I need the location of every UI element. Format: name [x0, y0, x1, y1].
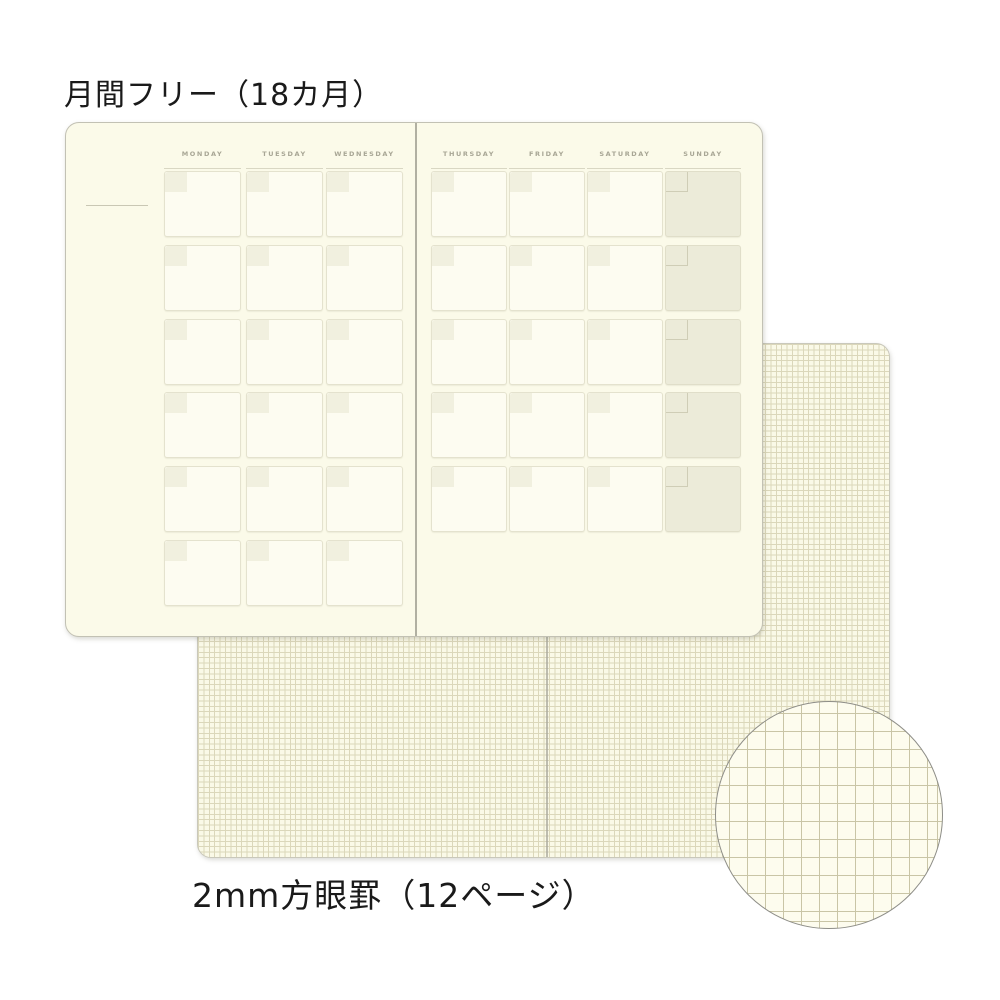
calendar-cell: [587, 466, 663, 532]
day-header: MONDAY: [164, 149, 241, 159]
date-corner-square: [327, 467, 349, 487]
date-corner-square: [510, 172, 532, 192]
date-corner-square: [247, 393, 269, 413]
date-corner-square: [165, 393, 187, 413]
calendar-cell: [164, 540, 241, 606]
calendar-cell: [246, 466, 323, 532]
calendar-cell: [326, 245, 403, 311]
date-corner-square: [588, 246, 610, 266]
date-corner-square: [432, 393, 454, 413]
calendar-cell: [326, 319, 403, 385]
day-header: SATURDAY: [587, 149, 663, 159]
calendar-cell: [326, 466, 403, 532]
date-corner-square: [432, 467, 454, 487]
date-corner-square: [666, 320, 688, 340]
date-corner-square: [588, 467, 610, 487]
calendar-cell: [665, 245, 741, 311]
calendar-cell: [665, 171, 741, 237]
day-header-rule: [587, 168, 663, 169]
date-corner-square: [327, 246, 349, 266]
monthly-calendar-spread: MONDAYTUESDAYWEDNESDAY THURSDAYFRIDAYSAT…: [65, 122, 763, 637]
date-corner-square: [247, 541, 269, 561]
date-corner-square: [327, 541, 349, 561]
day-header-rule: [326, 168, 403, 169]
top-title: 月間フリー（18カ月）: [64, 70, 383, 114]
calendar-cell: [164, 171, 241, 237]
calendar-cell: [431, 245, 507, 311]
calendar-cell: [246, 171, 323, 237]
calendar-cell: [431, 392, 507, 458]
month-title-line: [86, 205, 148, 206]
calendar-cell: [509, 171, 585, 237]
calendar-cell: [509, 466, 585, 532]
date-corner-square: [327, 393, 349, 413]
date-corner-square: [432, 320, 454, 340]
date-corner-square: [666, 172, 688, 192]
date-corner-square: [432, 246, 454, 266]
date-corner-square: [165, 172, 187, 192]
calendar-cell: [431, 171, 507, 237]
calendar-cell: [587, 319, 663, 385]
calendar-cell: [587, 392, 663, 458]
calendar-cell: [326, 540, 403, 606]
calendar-cell: [665, 319, 741, 385]
date-corner-square: [432, 172, 454, 192]
calendar-cell: [509, 392, 585, 458]
grid-magnifier-circle: [715, 701, 943, 929]
calendar-cell: [509, 319, 585, 385]
date-corner-square: [510, 320, 532, 340]
date-corner-square: [247, 467, 269, 487]
date-corner-square: [165, 541, 187, 561]
date-corner-square: [510, 246, 532, 266]
calendar-cell: [246, 245, 323, 311]
calendar-cell: [665, 392, 741, 458]
date-corner-square: [327, 172, 349, 192]
calendar-cell: [164, 392, 241, 458]
calendar-cell: [431, 319, 507, 385]
day-header-rule: [665, 168, 741, 169]
date-corner-square: [165, 320, 187, 340]
day-header: FRIDAY: [509, 149, 585, 159]
calendar-cell: [587, 171, 663, 237]
date-corner-square: [588, 172, 610, 192]
day-header-rule: [164, 168, 241, 169]
date-corner-square: [247, 320, 269, 340]
calendar-cell: [431, 466, 507, 532]
date-corner-square: [247, 246, 269, 266]
date-corner-square: [510, 467, 532, 487]
calendar-cell: [246, 540, 323, 606]
date-corner-square: [588, 320, 610, 340]
calendar-cell: [246, 392, 323, 458]
day-header: TUESDAY: [246, 149, 323, 159]
date-corner-square: [247, 172, 269, 192]
date-corner-square: [165, 467, 187, 487]
day-header-rule: [246, 168, 323, 169]
bottom-title: 2mm方眼罫（12ページ）: [192, 869, 596, 917]
date-corner-square: [666, 246, 688, 266]
calendar-cell: [326, 171, 403, 237]
date-corner-square: [666, 393, 688, 413]
date-corner-square: [510, 393, 532, 413]
calendar-cell: [326, 392, 403, 458]
calendar-cell: [587, 245, 663, 311]
date-corner-square: [666, 467, 688, 487]
calendar-cell: [164, 319, 241, 385]
calendar-cell: [246, 319, 323, 385]
date-corner-square: [165, 246, 187, 266]
calendar-cell: [164, 466, 241, 532]
date-corner-square: [327, 320, 349, 340]
day-header: WEDNESDAY: [326, 149, 403, 159]
day-header: THURSDAY: [431, 149, 507, 159]
date-corner-square: [588, 393, 610, 413]
day-header-rule: [509, 168, 585, 169]
day-header-rule: [431, 168, 507, 169]
calendar-cell: [665, 466, 741, 532]
calendar-center-fold: [415, 123, 417, 636]
day-header: SUNDAY: [665, 149, 741, 159]
calendar-cell: [509, 245, 585, 311]
calendar-cell: [164, 245, 241, 311]
